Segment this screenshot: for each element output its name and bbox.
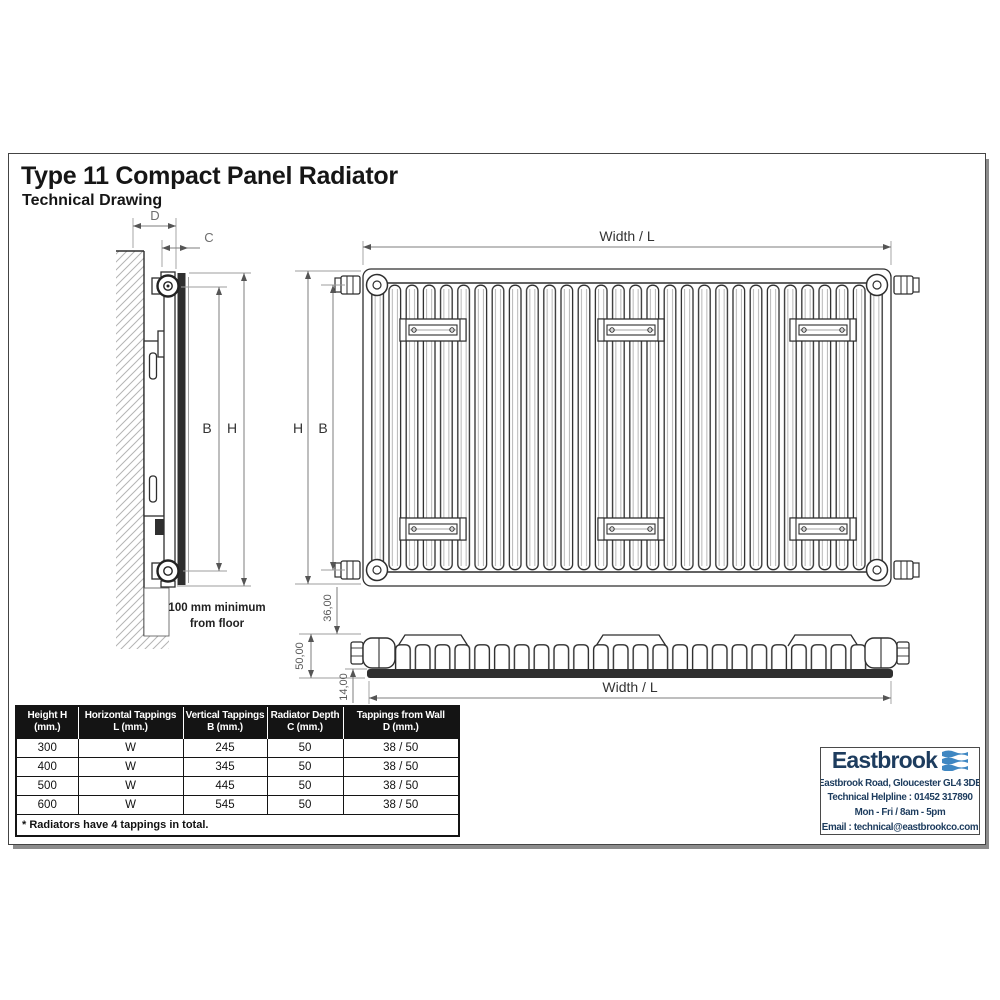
top-tapping-left: [351, 638, 395, 668]
drawing-frame: Type 11 Compact Panel Radiator Technical…: [8, 153, 986, 845]
company-info-box: Eastbrook Eastbrook Road, Gloucester GL4…: [820, 747, 980, 835]
company-email: Email : technical@eastbrookco.com: [822, 821, 978, 835]
top-tapping-right: [865, 638, 909, 668]
side-dim-c-label: C: [204, 230, 213, 245]
col-header-vertical-tappings: Vertical TappingsB (mm.): [183, 706, 267, 738]
top-dim-50-label: 50,00: [294, 642, 306, 670]
front-width-dimension: Width / L: [363, 228, 891, 265]
col-header-horizontal-tappings: Horizontal TappingsL (mm.): [78, 706, 183, 738]
top-view: 36,00 50,00 14,00 Width / L: [294, 587, 909, 704]
eastbrook-wave-icon: [942, 749, 968, 771]
front-width-label: Width / L: [599, 228, 654, 244]
svg-text:100 mm minimum: 100 mm minimum: [168, 602, 265, 614]
mounting-bracket: [790, 518, 856, 540]
side-dim-b-label: B: [202, 420, 211, 436]
wall-bracket-side: [144, 331, 165, 535]
svg-text:from floor: from floor: [190, 618, 245, 630]
mounting-bracket: [400, 319, 466, 341]
col-header-tappings-from-wall: Tappings from WallD (mm.): [343, 706, 459, 738]
table-footnote-row: * Radiators have 4 tappings in total.: [16, 814, 459, 836]
top-dim-36-label: 36,00: [322, 594, 334, 622]
side-dim-h-label: H: [227, 420, 237, 436]
front-dim-h-label: H: [293, 420, 303, 436]
mounting-bracket: [598, 518, 664, 540]
front-height-dimensions: H B: [293, 271, 361, 584]
table-row: 500 W 445 50 38 / 50: [16, 776, 459, 795]
front-view: Width / L H: [293, 228, 919, 586]
top-dim-14-label: 14,00: [338, 673, 350, 701]
company-helpline: Technical Helpline : 01452 317890: [827, 791, 972, 806]
tapping-top-right: [867, 275, 920, 296]
company-name: Eastbrook: [832, 747, 937, 774]
side-valve-top: [152, 276, 179, 297]
eastbrook-logo: Eastbrook: [832, 747, 968, 774]
mounting-bracket: [400, 518, 466, 540]
mounting-bracket: [598, 319, 664, 341]
front-dim-b-label: B: [318, 420, 327, 436]
table-row: 400 W 345 50 38 / 50: [16, 757, 459, 776]
tapping-bottom-right: [867, 560, 920, 581]
front-panel-bar: [367, 669, 893, 678]
radiator-side-panel: [161, 272, 189, 587]
company-hours: Mon - Fri / 8am - 5pm: [855, 806, 946, 821]
mounting-bracket: [790, 319, 856, 341]
company-address: Eastbrook Road, Gloucester GL4 3DB: [820, 777, 980, 792]
col-header-height: Height H(mm.): [16, 706, 78, 738]
spec-table: Height H(mm.) Horizontal TappingsL (mm.)…: [15, 705, 460, 837]
side-view: D C B H 100 mm minimum: [116, 208, 266, 649]
table-row: 300 W 245 50 38 / 50: [16, 738, 459, 757]
table-footnote: * Radiators have 4 tappings in total.: [16, 814, 459, 836]
top-width-label: Width / L: [602, 679, 657, 695]
side-valve-bottom: [152, 561, 179, 582]
col-header-radiator-depth: Radiator DepthC (mm.): [267, 706, 343, 738]
floor-clearance-note: 100 mm minimum from floor: [168, 602, 265, 630]
table-row: 600 W 545 50 38 / 50: [16, 795, 459, 814]
spec-table-header-row: Height H(mm.) Horizontal TappingsL (mm.)…: [16, 706, 459, 738]
top-fins: [393, 643, 868, 669]
side-dim-d-label: D: [150, 208, 159, 223]
floor-gap: [144, 588, 169, 636]
